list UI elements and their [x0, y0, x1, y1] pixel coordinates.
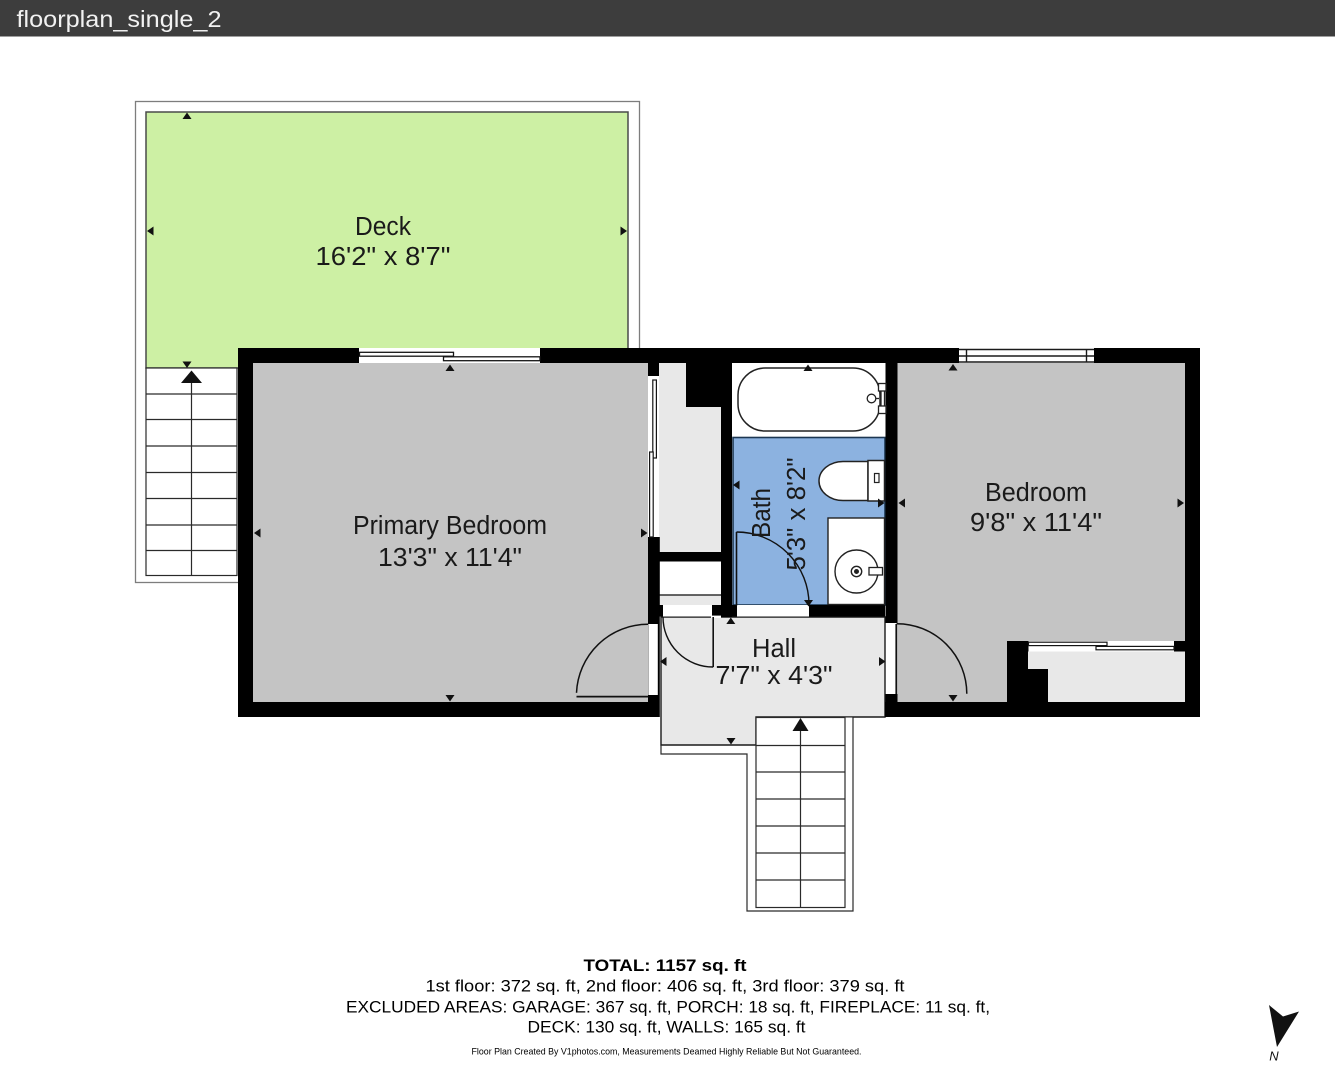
svg-text:1st floor: 372 sq. ft, 2nd flo: 1st floor: 372 sq. ft, 2nd floor: 406 sq…	[426, 977, 905, 996]
svg-text:16'2" x 8'7": 16'2" x 8'7"	[316, 243, 451, 271]
svg-text:Floor Plan Created By V1photos: Floor Plan Created By V1photos.com, Meas…	[472, 1047, 862, 1058]
svg-text:Bath: Bath	[748, 488, 776, 538]
svg-text:DECK: 130 sq. ft, WALLS: 165 s: DECK: 130 sq. ft, WALLS: 165 sq. ft	[528, 1018, 806, 1037]
svg-text:Deck: Deck	[355, 213, 411, 241]
svg-text:floorplan_single_2: floorplan_single_2	[17, 6, 222, 32]
svg-text:9'8" x 11'4": 9'8" x 11'4"	[970, 509, 1102, 537]
svg-text:EXCLUDED AREAS: GARAGE: 367 sq: EXCLUDED AREAS: GARAGE: 367 sq. ft, PORC…	[346, 997, 990, 1016]
svg-text:5'3" x 8'2": 5'3" x 8'2"	[783, 458, 811, 571]
svg-text:Primary Bedroom: Primary Bedroom	[353, 512, 547, 540]
svg-text:Bedroom: Bedroom	[985, 479, 1087, 507]
svg-text:7'7" x 4'3": 7'7" x 4'3"	[716, 662, 833, 690]
svg-text:13'3" x 11'4": 13'3" x 11'4"	[378, 544, 522, 572]
svg-text:Hall: Hall	[752, 635, 796, 663]
svg-text:TOTAL: 1157 sq. ft: TOTAL: 1157 sq. ft	[584, 956, 747, 975]
svg-text:N: N	[1269, 1049, 1279, 1064]
